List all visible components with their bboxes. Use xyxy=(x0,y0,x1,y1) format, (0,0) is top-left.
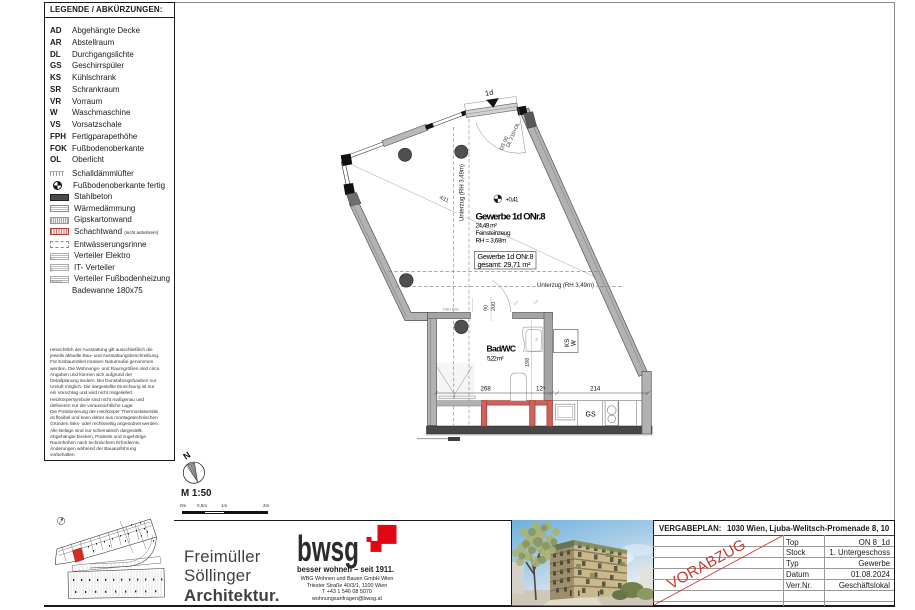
svg-text:DL 210+OL: DL 210+OL xyxy=(505,122,521,149)
svg-text:Unterzug (RH 3,49m): Unterzug (RH 3,49m) xyxy=(459,164,466,221)
svg-text:1d: 1d xyxy=(484,88,494,98)
svg-text:431: 431 xyxy=(438,195,449,205)
svg-text:12⁵: 12⁵ xyxy=(536,386,546,393)
svg-text:RH = 3,68m: RH = 3,68m xyxy=(476,238,507,245)
svg-text:EP: EP xyxy=(533,299,540,305)
svg-text:N: N xyxy=(181,450,192,462)
svg-text:268: 268 xyxy=(481,386,492,393)
svg-text:Gewerbe 1d ONr.8: Gewerbe 1d ONr.8 xyxy=(476,212,546,223)
svg-text:198: 198 xyxy=(525,358,531,367)
svg-text:5,22 m²: 5,22 m² xyxy=(487,356,504,363)
svg-text:EP: EP xyxy=(513,300,520,306)
svg-text:24,49 m²: 24,49 m² xyxy=(476,223,498,230)
svg-text:200: 200 xyxy=(491,302,497,311)
svg-text:FBH b60: FBH b60 xyxy=(443,307,460,312)
svg-text:W: W xyxy=(571,340,578,346)
svg-text:Feinsteinzeug: Feinsteinzeug xyxy=(476,230,511,237)
svg-text:90: 90 xyxy=(484,305,490,311)
svg-text:gesamt: 29,71 m²: gesamt: 29,71 m² xyxy=(478,260,532,269)
svg-text:214: 214 xyxy=(590,386,601,393)
svg-text:Bad/WC: Bad/WC xyxy=(487,344,517,354)
svg-text:GS: GS xyxy=(586,412,596,419)
svg-text:Unterzug (RH 3,49m): Unterzug (RH 3,49m) xyxy=(537,282,594,289)
svg-text:+0,41: +0,41 xyxy=(506,197,520,203)
